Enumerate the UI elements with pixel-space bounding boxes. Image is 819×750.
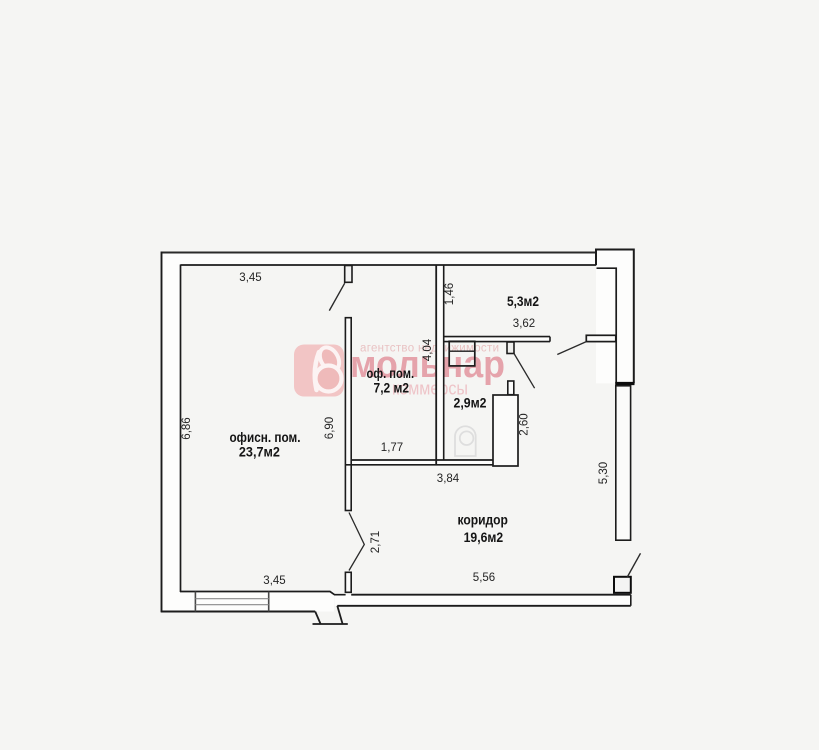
- svg-text:19,6м2: 19,6м2: [464, 530, 504, 545]
- svg-text:3,62: 3,62: [513, 318, 535, 330]
- svg-text:6,90: 6,90: [324, 417, 336, 439]
- svg-text:4,04: 4,04: [422, 338, 434, 361]
- svg-text:7,2 м2: 7,2 м2: [374, 380, 410, 395]
- svg-text:5,3м2: 5,3м2: [507, 294, 539, 309]
- svg-text:6,86: 6,86: [181, 417, 193, 439]
- svg-text:5,56: 5,56: [473, 572, 495, 584]
- svg-text:1,77: 1,77: [381, 442, 403, 454]
- svg-text:3,45: 3,45: [239, 272, 261, 284]
- svg-text:5,30: 5,30: [598, 462, 610, 484]
- svg-text:2,71: 2,71: [370, 531, 382, 553]
- svg-text:офисн. пом.: офисн. пом.: [230, 430, 301, 445]
- svg-text:коридор: коридор: [457, 513, 508, 528]
- svg-text:3,45: 3,45: [263, 575, 285, 587]
- svg-text:2,60: 2,60: [519, 413, 531, 435]
- svg-text:1,46: 1,46: [444, 283, 456, 305]
- svg-text:3,84: 3,84: [437, 473, 460, 485]
- svg-text:оф. пом.: оф. пом.: [367, 366, 415, 381]
- svg-text:2,9м2: 2,9м2: [454, 396, 487, 411]
- svg-text:23,7м2: 23,7м2: [239, 445, 280, 460]
